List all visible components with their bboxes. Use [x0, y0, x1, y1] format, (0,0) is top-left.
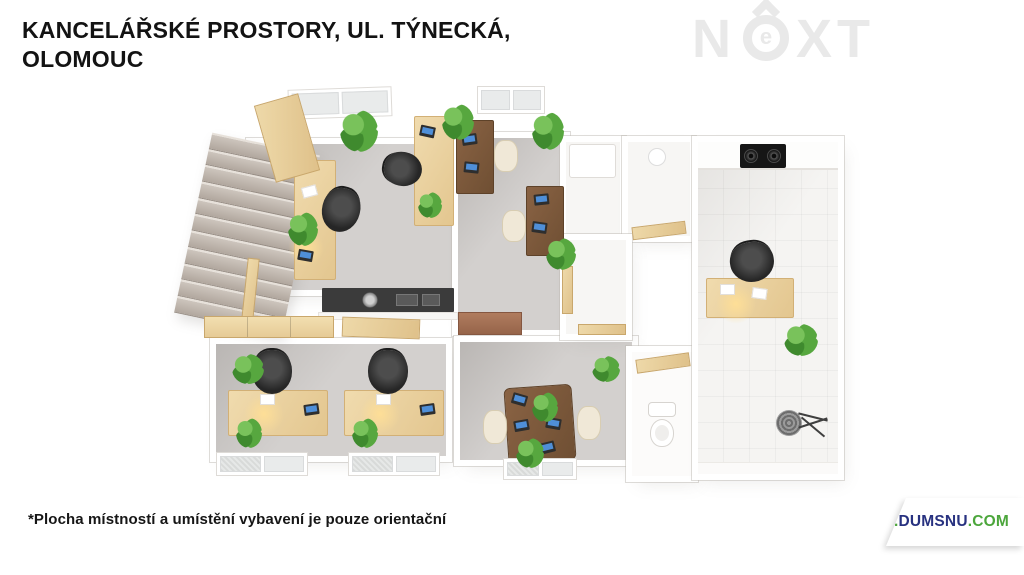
laptop [303, 403, 319, 416]
page-title-line1: KANCELÁŘSKÉ PROSTORY, UL. TÝNECKÁ, [22, 16, 682, 45]
window-pane [220, 456, 261, 472]
plant [532, 112, 564, 150]
plant [784, 324, 818, 356]
disclaimer-note: *Plocha místností a umístění vybavení je… [28, 511, 446, 528]
shower-head [776, 404, 836, 448]
logo-letter-n: N [692, 12, 736, 66]
sideboard [204, 316, 334, 338]
website-suffix: .COM [968, 513, 1009, 531]
page-title: KANCELÁŘSKÉ PROSTORY, UL. TÝNECKÁ, OLOMO… [22, 16, 682, 75]
burner-icon [767, 149, 781, 163]
window-pane [264, 456, 305, 472]
toilet [648, 402, 676, 448]
plant [352, 418, 378, 448]
window-pane [542, 462, 574, 476]
papers [260, 394, 275, 405]
office-chair-black [368, 350, 408, 394]
next-logo-watermark: N e XT [692, 12, 875, 66]
open-door-hallway [562, 266, 573, 314]
washer-fixture [569, 144, 616, 178]
plant [288, 212, 318, 246]
plant [418, 192, 442, 218]
chair-cream [502, 210, 526, 242]
laptop [297, 249, 314, 262]
logo-e-roof-icon: e [743, 2, 789, 61]
listing-image: KANCELÁŘSKÉ PROSTORY, UL. TÝNECKÁ, OLOMO… [0, 0, 1024, 575]
window-pane [513, 90, 542, 110]
logo-letters-xt: XT [796, 12, 875, 66]
logo-letter-e: e [760, 24, 772, 50]
laptop [531, 221, 547, 234]
plant [516, 438, 544, 468]
toilet-tank [648, 402, 676, 417]
plant [340, 110, 378, 152]
window-pane [481, 90, 510, 110]
floor-plan [200, 90, 850, 490]
plant [592, 356, 620, 382]
chair-cream [577, 406, 601, 440]
website-url: WWW.DUMSNU.COM [880, 498, 1024, 546]
tiled-room-threshold [698, 462, 838, 474]
chair-cream [494, 140, 518, 172]
page-title-line2: OLOMOUC [22, 45, 682, 74]
sideboard [342, 317, 421, 340]
burner-icon [744, 149, 758, 163]
papers [376, 394, 391, 405]
plant [442, 104, 474, 140]
kitchenette-counter [322, 288, 454, 312]
sink-fixture [648, 148, 666, 166]
plant [236, 418, 262, 448]
sink-icon [362, 292, 378, 308]
papers [720, 284, 735, 295]
window-pane [352, 456, 393, 472]
chair-cream [483, 410, 507, 444]
window-pane [396, 456, 437, 472]
window-office-3-right [348, 452, 440, 476]
laptop [419, 403, 435, 416]
window-office-3-left [216, 452, 308, 476]
website-prefix: WWW. [850, 513, 898, 531]
website-name: DUMSNU [898, 513, 967, 531]
toilet-bowl [650, 419, 674, 447]
plant [532, 392, 558, 422]
laptop [463, 161, 479, 174]
website-ribbon: WWW.DUMSNU.COM [880, 498, 1024, 546]
plant [232, 354, 264, 384]
cooktop [740, 144, 786, 168]
plant [546, 238, 576, 270]
sideboard-brown [458, 312, 522, 335]
window-office-2 [477, 86, 545, 114]
appliance-icon [422, 294, 440, 306]
papers [751, 287, 767, 300]
appliance-icon [396, 294, 418, 306]
laptop [533, 193, 549, 206]
open-door-meeting [578, 324, 626, 335]
